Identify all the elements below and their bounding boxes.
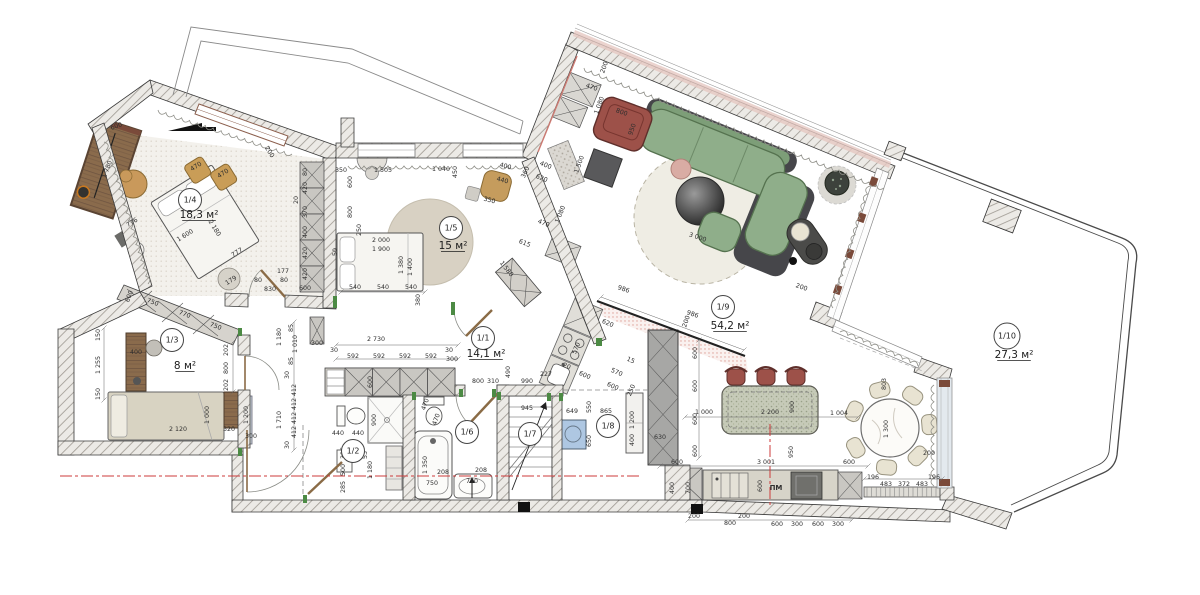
- room-label-1-3: 1/38 м²: [161, 329, 197, 373]
- threshold: [497, 392, 501, 400]
- dimension-label: 412: [291, 426, 298, 438]
- pink-side-table: [671, 159, 691, 179]
- room-number: 1/10: [998, 332, 1016, 341]
- dimension-label: 30: [445, 347, 453, 354]
- dimension-label: 950: [788, 446, 795, 458]
- dimension-label: 600: [671, 459, 683, 466]
- threshold: [547, 393, 551, 401]
- dimension-label: 600: [606, 381, 620, 392]
- dimension-label: 202: [223, 379, 230, 391]
- dimension-label: 177: [277, 268, 289, 275]
- glazed-wall: [832, 320, 922, 368]
- dimension-label: 400: [629, 434, 636, 446]
- dimension-label: 865: [600, 408, 612, 415]
- dimension-label: 400: [539, 160, 553, 171]
- desk-lamp: [133, 377, 141, 385]
- dimension-label: 300: [832, 521, 844, 528]
- glazed-wall: [937, 378, 952, 488]
- room-label-1-8: 1/8: [597, 415, 620, 438]
- toilet: [347, 408, 365, 424]
- dimension-label: 440: [332, 430, 344, 437]
- dimension-label: 710: [466, 478, 478, 485]
- dimension-label: 1 180: [367, 461, 374, 479]
- dimension-label: 150: [95, 329, 102, 341]
- dining-table: [861, 399, 919, 457]
- dimension-label: ПМ: [770, 484, 783, 492]
- dimension-label: 285: [340, 481, 347, 493]
- floor-plan-canvas: 6001 7804704707761 6002 1807771792006007…: [0, 0, 1200, 595]
- room-area: 15 м²: [439, 240, 468, 252]
- dimension-label: 630: [654, 434, 666, 441]
- dimension-label: 592: [399, 353, 411, 360]
- dimension-label: 420: [302, 268, 309, 280]
- dimension-label: 196: [928, 474, 940, 481]
- room-label-1-10: 1/1027,3 м²: [994, 323, 1033, 361]
- dimension-label: 2 120: [169, 426, 187, 433]
- square-side-table: [584, 149, 622, 187]
- room-number: 1/6: [461, 428, 474, 437]
- dimension-label: 380: [415, 294, 422, 306]
- dimension-label: 600: [843, 459, 855, 466]
- room-label-1-1: 1/114,1 м²: [467, 327, 506, 361]
- dimension-label: 986: [617, 284, 631, 295]
- dimension-label: 440: [352, 430, 364, 437]
- dimension-label: 200: [795, 282, 809, 293]
- dimension-label: 540: [349, 284, 361, 291]
- dimension-label: 803: [881, 378, 888, 390]
- dimension-label: 700: [685, 482, 692, 494]
- room-area: 8 м²: [174, 360, 196, 372]
- dimension-label: 412: [291, 384, 298, 396]
- dimension-label: 400: [669, 482, 676, 494]
- kettle: [789, 257, 797, 265]
- toilet-tank: [337, 406, 345, 426]
- dimension-label: 1 040: [432, 166, 450, 173]
- threshold: [559, 393, 563, 401]
- threshold: [412, 392, 416, 400]
- desk-chair: [146, 340, 162, 356]
- room-number: 1/1: [477, 334, 490, 343]
- dimension-label: 370: [302, 206, 309, 218]
- floor-plan-page: { "drawing": { "type": "apartment-floor-…: [0, 0, 1200, 595]
- dimension-label: 1 505: [374, 167, 392, 174]
- bar-stool: [757, 369, 775, 385]
- dimension-label: 540: [377, 284, 389, 291]
- threshold: [333, 296, 337, 308]
- dimension-label: 990: [521, 378, 533, 385]
- dimension-label: 600: [578, 370, 592, 381]
- dimension-label: 649: [566, 408, 578, 415]
- plant: [818, 166, 856, 204]
- dimension-label: 1 400: [407, 258, 414, 276]
- dimension-label: 1 900: [372, 246, 390, 253]
- room-label-1-7: 1/7: [519, 423, 542, 446]
- dimension-label: 196: [867, 474, 879, 481]
- dimension-label: 250: [356, 224, 363, 236]
- dimension-label: 30: [330, 347, 338, 354]
- dimension-label: 600: [692, 445, 699, 457]
- dimension-label: 1 080: [554, 205, 567, 224]
- threshold: [238, 328, 242, 336]
- bar-stool: [787, 369, 805, 385]
- radiator: [864, 487, 941, 497]
- dimension-label: 1 350: [422, 456, 429, 474]
- dimension-label: 1 300: [883, 420, 890, 438]
- dimension-label: 85: [288, 357, 295, 365]
- room-area: 54,2 м²: [711, 320, 750, 332]
- kitchen-tall-cabinets: [648, 330, 678, 465]
- dimension-label: 1 010: [292, 335, 299, 353]
- dimension-label: 400: [130, 349, 142, 356]
- dimension-label: 650: [586, 435, 593, 447]
- dining-chair: [876, 459, 897, 476]
- room-area: 14,1 м²: [467, 348, 506, 360]
- dimension-label: 540: [405, 284, 417, 291]
- dimension-label: 600: [812, 521, 824, 528]
- dimension-label: 350: [335, 167, 347, 174]
- dimension-label: 592: [425, 353, 437, 360]
- room-number: 1/3: [166, 336, 179, 345]
- dimension-label: 400: [302, 226, 309, 238]
- dimension-label: 600: [299, 285, 311, 292]
- railing-pier: [983, 199, 1021, 233]
- kitchen-counter-bottom: [668, 468, 862, 500]
- dimension-label: 500: [340, 464, 347, 476]
- room-number: 1/9: [717, 303, 730, 312]
- dimension-label: 2 730: [367, 336, 385, 343]
- dimension-label: 600: [692, 380, 699, 392]
- dimension-label: 830: [264, 286, 276, 293]
- dimension-label: 1 200: [243, 406, 250, 424]
- room-label-1-9: 1/954,2 м²: [711, 296, 750, 333]
- dimension-label: 800: [347, 206, 354, 218]
- dimension-label: 750: [426, 480, 438, 487]
- dimension-label: 483: [916, 481, 928, 488]
- dimension-label: 320: [223, 426, 235, 433]
- dimension-label: 412: [291, 412, 298, 424]
- threshold: [596, 338, 602, 346]
- dimension-label: 1 380: [398, 256, 405, 274]
- dimension-label: 80: [280, 277, 288, 284]
- threshold: [459, 389, 463, 397]
- dimension-label: 412: [291, 398, 298, 410]
- threshold: [303, 495, 307, 503]
- room-number: 1/7: [524, 430, 537, 439]
- dining-chair: [921, 414, 938, 435]
- dimension-label: 202: [223, 344, 230, 356]
- room-area: 18,3 м²: [180, 209, 219, 221]
- threshold: [238, 448, 242, 456]
- room-label-1-2: 1/2: [342, 440, 365, 463]
- window: [463, 144, 523, 157]
- dimension-label: 200: [681, 315, 692, 329]
- washing-machine: [560, 420, 586, 449]
- dimension-label: 800: [724, 520, 736, 527]
- dimension-label: 80: [302, 168, 309, 176]
- section-marker: [518, 502, 530, 512]
- dimension-label: 1 710: [276, 411, 283, 429]
- dimension-label: 900: [789, 401, 796, 413]
- dimension-label: 200: [923, 450, 935, 457]
- dimension-label: 570: [610, 367, 624, 378]
- dimension-label: 1 000: [695, 409, 713, 416]
- bar-stool: [727, 369, 745, 385]
- dimension-label: 85: [288, 324, 295, 332]
- room-area: 27,3 м²: [995, 349, 1034, 361]
- dimension-label: 1 180: [276, 328, 283, 346]
- dimension-label: 80: [254, 277, 262, 284]
- dimension-label: 615: [518, 238, 532, 249]
- room-number: 1/4: [184, 196, 197, 205]
- dimension-label: 1 004: [830, 410, 848, 417]
- dimension-label: 800: [223, 362, 230, 374]
- dimension-label: 800: [472, 378, 484, 385]
- dimension-label: 1 200: [629, 411, 636, 429]
- dimension-label: 200: [688, 513, 700, 520]
- dimension-label: 2 200: [761, 409, 779, 416]
- dimension-label: 2 000: [372, 237, 390, 244]
- dimension-label: 50: [332, 248, 339, 256]
- dimension-label: 200: [599, 61, 610, 75]
- dimension-label: 600: [771, 521, 783, 528]
- room-number: 1/8: [602, 422, 615, 431]
- dimension-label: 150: [95, 388, 102, 400]
- dimension-label: 200: [738, 513, 750, 520]
- dimension-label: 300: [311, 340, 323, 347]
- dimension-label: 945: [521, 405, 533, 412]
- dimension-label: 300: [791, 521, 803, 528]
- threshold: [492, 389, 496, 397]
- dimension-label: 1 000: [204, 406, 211, 424]
- dimension-label: 227: [540, 371, 552, 378]
- dimension-label: 372: [898, 481, 910, 488]
- dimension-label: 310: [487, 378, 499, 385]
- dimension-label: 420: [302, 247, 309, 259]
- dimension-label: 592: [373, 353, 385, 360]
- dimension-label: 30: [284, 371, 291, 379]
- dimension-label: 592: [347, 353, 359, 360]
- dimension-label: 483: [880, 481, 892, 488]
- room-number: 1/2: [347, 447, 360, 456]
- dimension-label: 600: [757, 480, 764, 492]
- dimension-label: 600: [692, 347, 699, 359]
- dimension-label: 300: [446, 356, 458, 363]
- pillow: [111, 395, 127, 437]
- dimension-label: 600: [347, 176, 354, 188]
- window: [358, 144, 415, 157]
- dimension-label: 900: [371, 414, 378, 426]
- dimension-label: 30: [284, 441, 291, 449]
- dimension-label: 300: [245, 433, 257, 440]
- dimension-label: 1 255: [95, 356, 102, 374]
- dimension-label: 420: [302, 182, 309, 194]
- dimension-label: 208: [437, 469, 449, 476]
- dimension-label: 3 001: [757, 459, 775, 466]
- dimension-label: 15: [626, 356, 636, 366]
- room-label-1-6: 1/6: [456, 421, 479, 444]
- dimension-label: 550: [586, 401, 593, 413]
- dimension-label: 208: [475, 467, 487, 474]
- bar-stools: [725, 367, 807, 385]
- room-number: 1/5: [445, 224, 458, 233]
- dimension-label: 600: [367, 376, 374, 388]
- dimension-label: 400: [499, 162, 512, 172]
- threshold: [451, 302, 455, 315]
- pillow: [340, 237, 355, 262]
- dimension-label: 20: [293, 196, 300, 204]
- dimension-label: 450: [452, 166, 459, 178]
- dimension-label: 490: [505, 366, 512, 378]
- plant-leaf: [120, 170, 132, 182]
